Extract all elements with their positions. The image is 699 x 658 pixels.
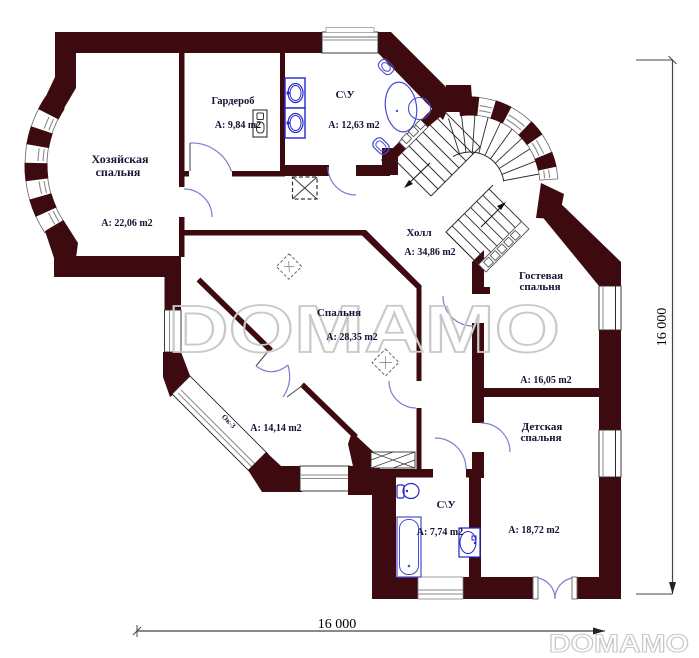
- svg-text:Холл: Холл: [406, 227, 431, 239]
- svg-text:С\У: С\У: [335, 89, 354, 101]
- svg-text:Спальня: Спальня: [317, 307, 361, 319]
- svg-text:DOMAMO: DOMAMO: [168, 292, 560, 367]
- svg-text:спальня: спальня: [519, 281, 560, 293]
- svg-text:А: 12,63 m2: А: 12,63 m2: [328, 120, 379, 131]
- svg-text:16 000: 16 000: [318, 617, 357, 632]
- svg-text:спальня: спальня: [96, 165, 141, 179]
- svg-text:16 000: 16 000: [655, 308, 670, 347]
- svg-text:DOMAMO: DOMAMO: [549, 630, 689, 658]
- svg-text:А: 7,74 m2: А: 7,74 m2: [417, 527, 463, 538]
- svg-text:С\У: С\У: [436, 499, 455, 511]
- svg-text:А: 18,72 m2: А: 18,72 m2: [508, 525, 559, 536]
- svg-text:Гардероб: Гардероб: [211, 96, 254, 107]
- svg-text:спальня: спальня: [520, 432, 561, 444]
- svg-text:Хозяйская: Хозяйская: [91, 152, 149, 166]
- svg-text:А: 14,14 m2: А: 14,14 m2: [250, 423, 301, 434]
- svg-text:А: 22,06 m2: А: 22,06 m2: [101, 218, 152, 229]
- svg-text:А: 9,84 m2: А: 9,84 m2: [215, 120, 261, 131]
- svg-text:А: 34,86 m2: А: 34,86 m2: [404, 247, 455, 258]
- svg-text:А: 28,35 m2: А: 28,35 m2: [326, 332, 377, 343]
- svg-text:А: 16,05 m2: А: 16,05 m2: [520, 375, 571, 386]
